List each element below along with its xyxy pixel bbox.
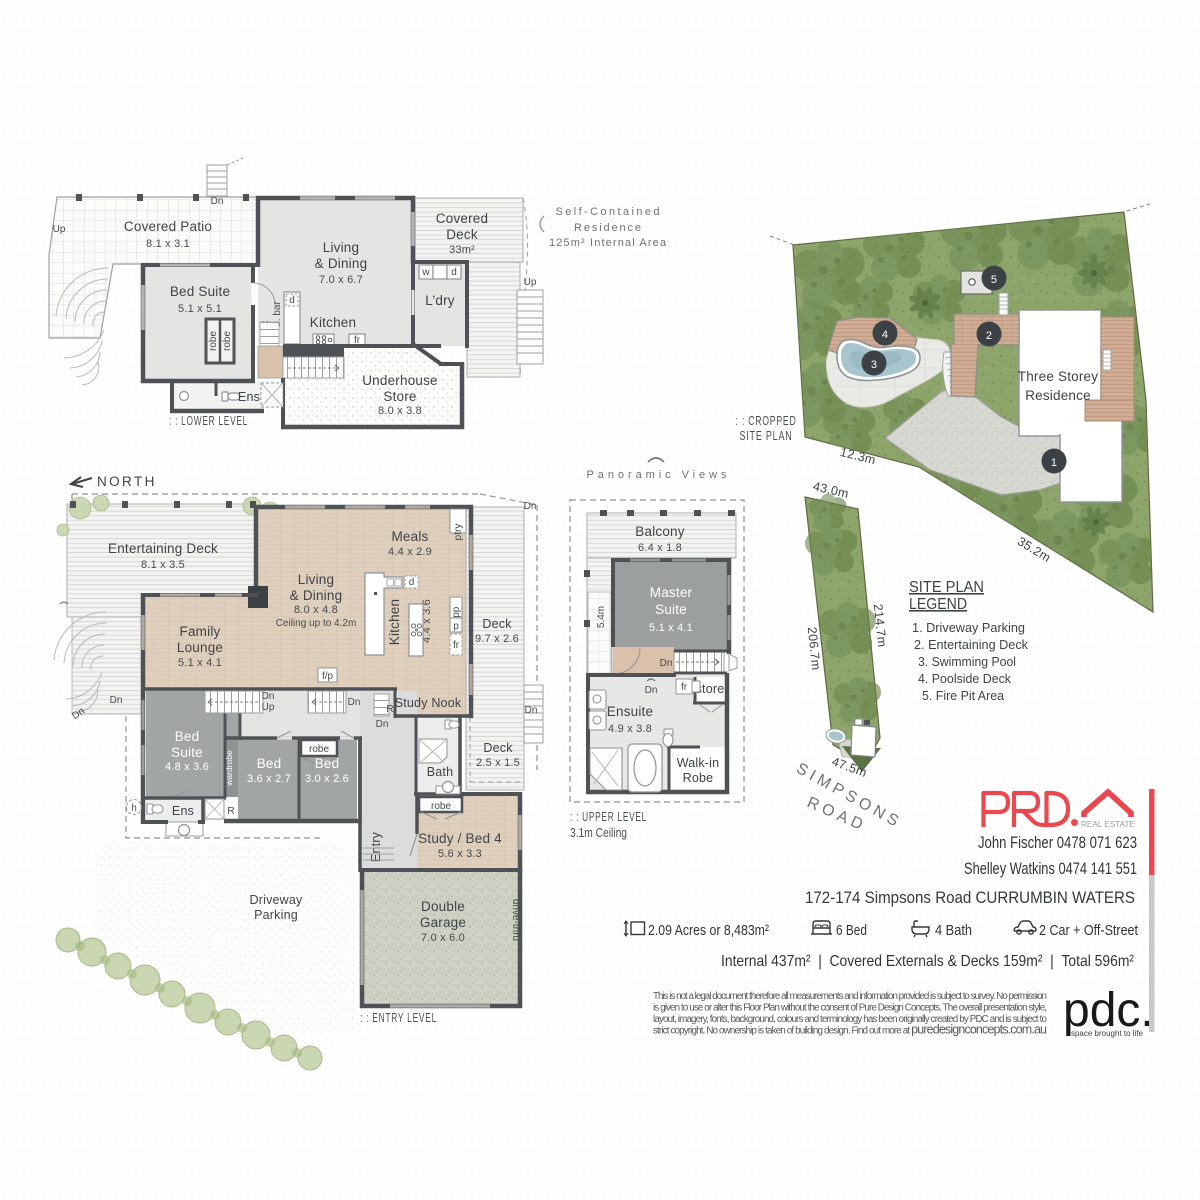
svg-text:Self-Contained: Self-Contained xyxy=(556,206,663,218)
svg-text:3.6 x 2.7: 3.6 x 2.7 xyxy=(247,773,291,785)
svg-text:Panoramic Views: Panoramic Views xyxy=(587,469,730,481)
svg-text:Suite: Suite xyxy=(171,745,203,760)
svg-text:Residence: Residence xyxy=(574,222,644,234)
svg-text:Lounge: Lounge xyxy=(177,640,223,655)
svg-text:7.0 x 6.7: 7.0 x 6.7 xyxy=(319,274,363,286)
svg-text:Store: Store xyxy=(383,389,416,404)
svg-text:SITE PLAN: SITE PLAN xyxy=(740,429,793,443)
svg-text:Robe: Robe xyxy=(683,771,714,785)
svg-text:Bath: Bath xyxy=(427,765,454,779)
svg-text:3. Swimming Pool: 3. Swimming Pool xyxy=(918,654,1016,669)
svg-text:fr: fr xyxy=(681,682,688,693)
svg-text:NORTH: NORTH xyxy=(97,474,157,489)
svg-text:Living: Living xyxy=(298,572,334,587)
svg-text:4. Poolside Deck: 4. Poolside Deck xyxy=(918,671,1012,686)
svg-text:Study / Bed 4: Study / Bed 4 xyxy=(418,831,502,846)
svg-text:5.1 x 4.1: 5.1 x 4.1 xyxy=(649,622,693,634)
svg-text:4.4 x 2.9: 4.4 x 2.9 xyxy=(388,546,432,558)
svg-text:Entry: Entry xyxy=(369,831,383,862)
svg-text:9.7 x 2.6: 9.7 x 2.6 xyxy=(475,633,519,645)
svg-text:125m² Internal Area: 125m² Internal Area xyxy=(549,237,669,249)
svg-text:Double: Double xyxy=(421,899,465,914)
svg-text:Residence: Residence xyxy=(1025,388,1091,403)
svg-text:Driveway: Driveway xyxy=(250,893,304,907)
svg-text:Underhouse: Underhouse xyxy=(362,373,438,388)
svg-text:drive-thru: drive-thru xyxy=(510,899,521,941)
svg-text:Up: Up xyxy=(524,277,537,288)
svg-text:Balcony: Balcony xyxy=(635,524,684,539)
svg-text:Dn: Dn xyxy=(376,719,389,730)
svg-text:Walk-in: Walk-in xyxy=(677,756,720,770)
svg-text:d: d xyxy=(409,577,415,588)
svg-text:& Dining: & Dining xyxy=(290,588,343,603)
svg-text:robe: robe xyxy=(222,331,233,351)
svg-text:33m²: 33m² xyxy=(449,244,475,256)
svg-text:172-174 Simpsons Road CURRUMBI: 172-174 Simpsons Road CURRUMBIN WATERS xyxy=(805,888,1135,907)
svg-text:Deck: Deck xyxy=(482,617,512,631)
svg-text:Bed: Bed xyxy=(315,756,340,771)
svg-text:7.0 x 6.0: 7.0 x 6.0 xyxy=(421,932,465,944)
svg-text:Living: Living xyxy=(323,240,359,255)
svg-text:Up: Up xyxy=(262,702,275,713)
svg-text:2.5 x 1.5: 2.5 x 1.5 xyxy=(476,757,520,769)
svg-text:L’dry: L’dry xyxy=(425,293,455,308)
svg-text:Meals: Meals xyxy=(391,529,428,544)
svg-text:4 Bath: 4 Bath xyxy=(935,922,972,939)
svg-text:d: d xyxy=(289,295,295,306)
svg-text:is given to use or alter this: is given to use or alter this Floor Plan… xyxy=(653,1003,1047,1014)
svg-text:& Dining: & Dining xyxy=(315,256,368,271)
svg-text:: : ENTRY LEVEL: : : ENTRY LEVEL xyxy=(360,1011,437,1025)
svg-text:fr: fr xyxy=(453,640,460,651)
svg-text:REAL ESTATE: REAL ESTATE xyxy=(1081,819,1135,829)
svg-text:This is not a legal document t: This is not a legal document therefore a… xyxy=(653,991,1047,1002)
svg-text:2: 2 xyxy=(986,330,992,342)
svg-text:Covered: Covered xyxy=(436,211,488,226)
svg-text:w: w xyxy=(421,267,430,278)
svg-text:SITE PLAN: SITE PLAN xyxy=(909,579,984,596)
svg-text:4.9 x 3.8: 4.9 x 3.8 xyxy=(608,723,652,735)
svg-text:space brought to life: space brought to life xyxy=(1071,1029,1144,1038)
svg-text:robe: robe xyxy=(431,801,451,812)
svg-text:8.1 x 3.1: 8.1 x 3.1 xyxy=(146,238,190,250)
svg-text:Dn: Dn xyxy=(645,685,658,696)
svg-text:Shelley Watkins 0474 141 551: Shelley Watkins 0474 141 551 xyxy=(964,860,1137,878)
svg-text:5: 5 xyxy=(991,274,997,286)
svg-text:Ensuite: Ensuite xyxy=(607,704,653,719)
svg-text:robe: robe xyxy=(208,331,219,351)
svg-text:5.1 x 4.1: 5.1 x 4.1 xyxy=(178,657,222,669)
svg-text:wardrobe: wardrobe xyxy=(224,750,234,787)
svg-text:Dn: Dn xyxy=(110,695,123,706)
svg-text:Kitchen: Kitchen xyxy=(387,599,402,645)
svg-text:R: R xyxy=(386,704,393,715)
svg-text:f/p: f/p xyxy=(322,671,334,682)
svg-text:Dn: Dn xyxy=(348,697,361,708)
svg-text:: : LOWER LEVEL: : : LOWER LEVEL xyxy=(169,414,248,428)
svg-text:p: p xyxy=(453,621,459,632)
svg-text:Ens: Ens xyxy=(238,390,260,404)
svg-text:: : CROPPED: : : CROPPED xyxy=(736,414,797,428)
svg-text:Bed: Bed xyxy=(257,756,282,771)
svg-text:R: R xyxy=(227,806,234,817)
svg-text:Covered Patio: Covered Patio xyxy=(124,219,212,234)
svg-text:h: h xyxy=(131,803,137,814)
svg-text:: : UPPER LEVEL: : : UPPER LEVEL xyxy=(570,810,647,824)
svg-text:Ceiling up to 4.2m: Ceiling up to 4.2m xyxy=(276,618,357,629)
svg-text:Garage: Garage xyxy=(420,915,466,930)
svg-text:LEGEND: LEGEND xyxy=(909,596,967,613)
svg-text:1: 1 xyxy=(1051,457,1057,469)
svg-text:Internal 437m² | Covered Ext: Internal 437m² | Covered Externals & Dec… xyxy=(721,953,1135,970)
svg-text:Deck: Deck xyxy=(446,227,478,242)
svg-text:Dn: Dn xyxy=(262,691,275,702)
svg-text:4.8 x 3.6: 4.8 x 3.6 xyxy=(165,761,209,773)
svg-text:Entertaining Deck: Entertaining Deck xyxy=(108,541,218,556)
svg-text:Master: Master xyxy=(650,585,693,600)
svg-text:5. Fire Pit Area: 5. Fire Pit Area xyxy=(922,688,1005,703)
svg-text:3: 3 xyxy=(871,359,877,371)
svg-text:Parking: Parking xyxy=(254,908,298,922)
svg-text:8.1 x 3.5: 8.1 x 3.5 xyxy=(141,559,185,571)
svg-text:Three Storey: Three Storey xyxy=(1018,369,1098,384)
svg-text:5.1 x 5.1: 5.1 x 5.1 xyxy=(178,303,222,315)
svg-text:d: d xyxy=(451,267,457,278)
svg-text:Family: Family xyxy=(180,624,221,639)
svg-text:3.0 x 2.6: 3.0 x 2.6 xyxy=(305,773,349,785)
svg-text:Dn: Dn xyxy=(524,501,537,512)
svg-text:John Fischer 0478 071 623: John Fischer 0478 071 623 xyxy=(978,834,1137,852)
svg-text:2. Entertaining Deck: 2. Entertaining Deck xyxy=(914,637,1029,652)
svg-text:Deck: Deck xyxy=(483,741,513,755)
svg-text:2.09 Acres or 8,483m²: 2.09 Acres or 8,483m² xyxy=(648,922,769,939)
svg-text:Ens: Ens xyxy=(172,804,194,818)
svg-text:6.4 x 1.8: 6.4 x 1.8 xyxy=(638,542,682,554)
svg-text:2 Car + Off-Street: 2 Car + Off-Street xyxy=(1039,922,1139,939)
svg-text:Bed Suite: Bed Suite xyxy=(170,284,230,299)
svg-text:Bed: Bed xyxy=(175,729,200,744)
svg-text:Dn: Dn xyxy=(211,196,224,207)
svg-text:Dn: Dn xyxy=(525,705,538,716)
svg-text:strict copyright. No ownership: strict copyright. No ownership is taken … xyxy=(653,1023,1047,1037)
svg-text:4: 4 xyxy=(882,329,888,341)
svg-text:Dn: Dn xyxy=(660,658,673,669)
svg-text:ptry: ptry xyxy=(453,524,464,541)
svg-text:6 Bed: 6 Bed xyxy=(836,922,867,939)
svg-text:Suite: Suite xyxy=(655,602,687,617)
svg-text:5.4m: 5.4m xyxy=(596,606,607,628)
svg-text:3.1m Ceiling: 3.1m Ceiling xyxy=(570,826,627,840)
svg-text:Up: Up xyxy=(53,224,66,235)
svg-text:Study Nook: Study Nook xyxy=(395,696,462,710)
svg-text:8.0 x 4.8: 8.0 x 4.8 xyxy=(294,604,338,616)
svg-text:8.0 x 3.8: 8.0 x 3.8 xyxy=(378,405,422,417)
svg-text:1. Driveway Parking: 1. Driveway Parking xyxy=(912,620,1025,635)
svg-text:Kitchen: Kitchen xyxy=(310,315,356,330)
svg-text:robe: robe xyxy=(309,744,329,755)
svg-text:5.6 x 3.3: 5.6 x 3.3 xyxy=(438,848,482,860)
